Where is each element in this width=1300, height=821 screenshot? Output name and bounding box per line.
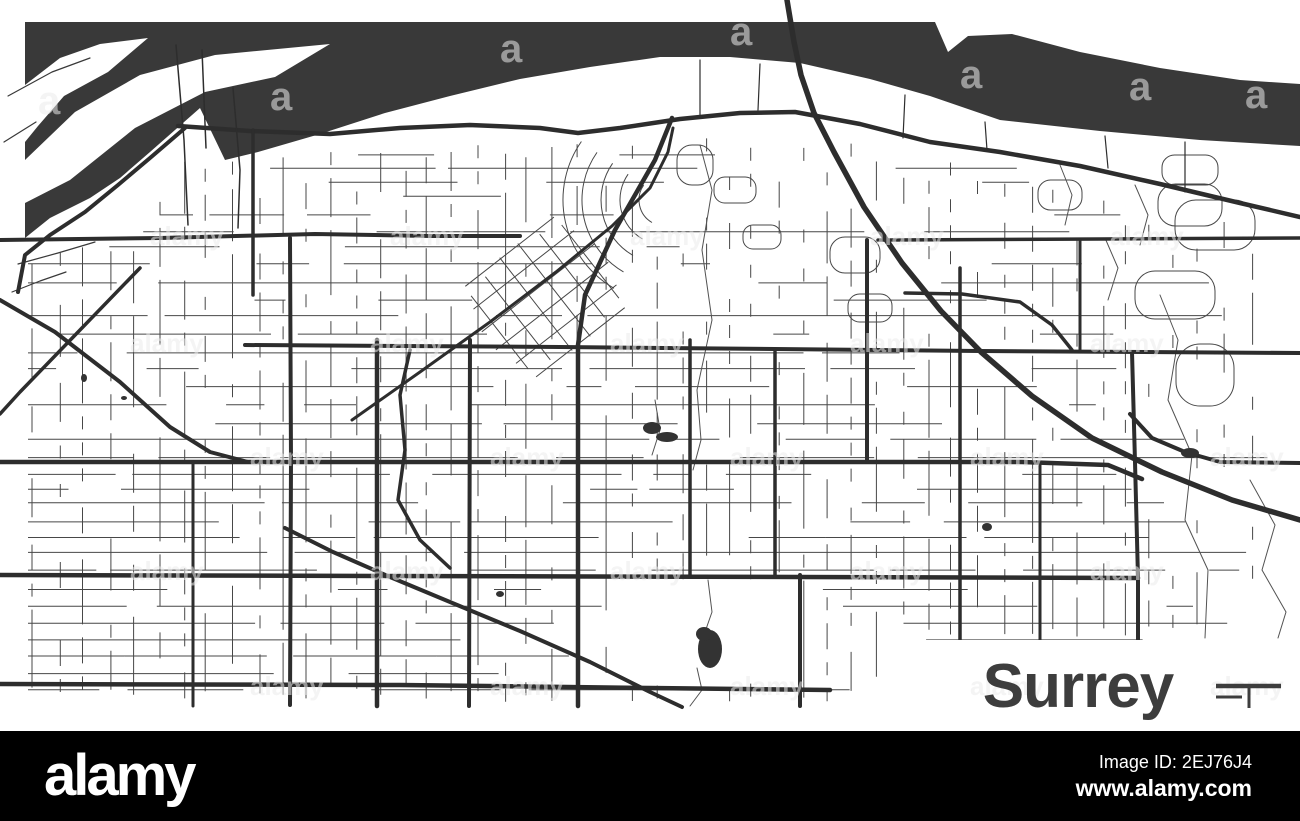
- stock-map-poster: aaaaaaaalamyalamyalamyalamyalamyalamyala…: [0, 0, 1300, 821]
- alamy-watermark: alamy: [370, 328, 444, 358]
- alamy-watermark: alamy: [490, 671, 564, 701]
- alamy-watermark: a: [1245, 73, 1268, 117]
- alamy-watermark: alamy: [250, 442, 324, 472]
- city-map-canvas: aaaaaaaalamyalamyalamyalamyalamyalamyala…: [0, 0, 1300, 731]
- brand-info: Image ID: 2EJ76J4 www.alamy.com: [1076, 750, 1252, 802]
- alamy-url-text: www.alamy.com: [1076, 774, 1252, 802]
- alamy-watermark: alamy: [1210, 442, 1284, 472]
- alamy-watermark: alamy: [1110, 221, 1184, 251]
- alamy-watermark: alamy: [150, 221, 224, 251]
- alamy-watermark: a: [1129, 65, 1152, 109]
- alamy-watermark: alamy: [1090, 328, 1164, 358]
- alamy-watermark: alamy: [1090, 556, 1164, 586]
- alamy-watermark: alamy: [130, 556, 204, 586]
- alamy-watermark: a: [960, 53, 983, 97]
- alamy-watermark: a: [730, 10, 753, 54]
- alamy-watermark: alamy: [850, 328, 924, 358]
- alamy-watermark: alamy: [390, 221, 464, 251]
- alamy-watermark: alamy: [870, 221, 944, 251]
- image-id-text: Image ID: 2EJ76J4: [1076, 750, 1252, 774]
- alamy-watermark: alamy: [130, 328, 204, 358]
- alamy-watermark: alamy: [970, 442, 1044, 472]
- alamy-watermark: alamy: [370, 556, 444, 586]
- watermark-bar: alamy Image ID: 2EJ76J4 www.alamy.com: [0, 731, 1300, 821]
- alamy-watermark: alamy: [630, 221, 704, 251]
- alamy-watermark: a: [500, 27, 523, 71]
- alamy-watermark: alamy: [730, 671, 804, 701]
- city-name-label: Surrey: [958, 655, 1198, 719]
- alamy-watermark: alamy: [490, 442, 564, 472]
- alamy-watermark: a: [270, 75, 293, 119]
- alamy-watermark: a: [38, 79, 61, 123]
- alamy-watermark: alamy: [730, 442, 804, 472]
- alamy-logo: alamy: [44, 731, 193, 821]
- alamy-watermark: alamy: [250, 671, 324, 701]
- alamy-watermark: alamy: [610, 556, 684, 586]
- alamy-watermark: alamy: [850, 556, 924, 586]
- alamy-watermark: alamy: [610, 328, 684, 358]
